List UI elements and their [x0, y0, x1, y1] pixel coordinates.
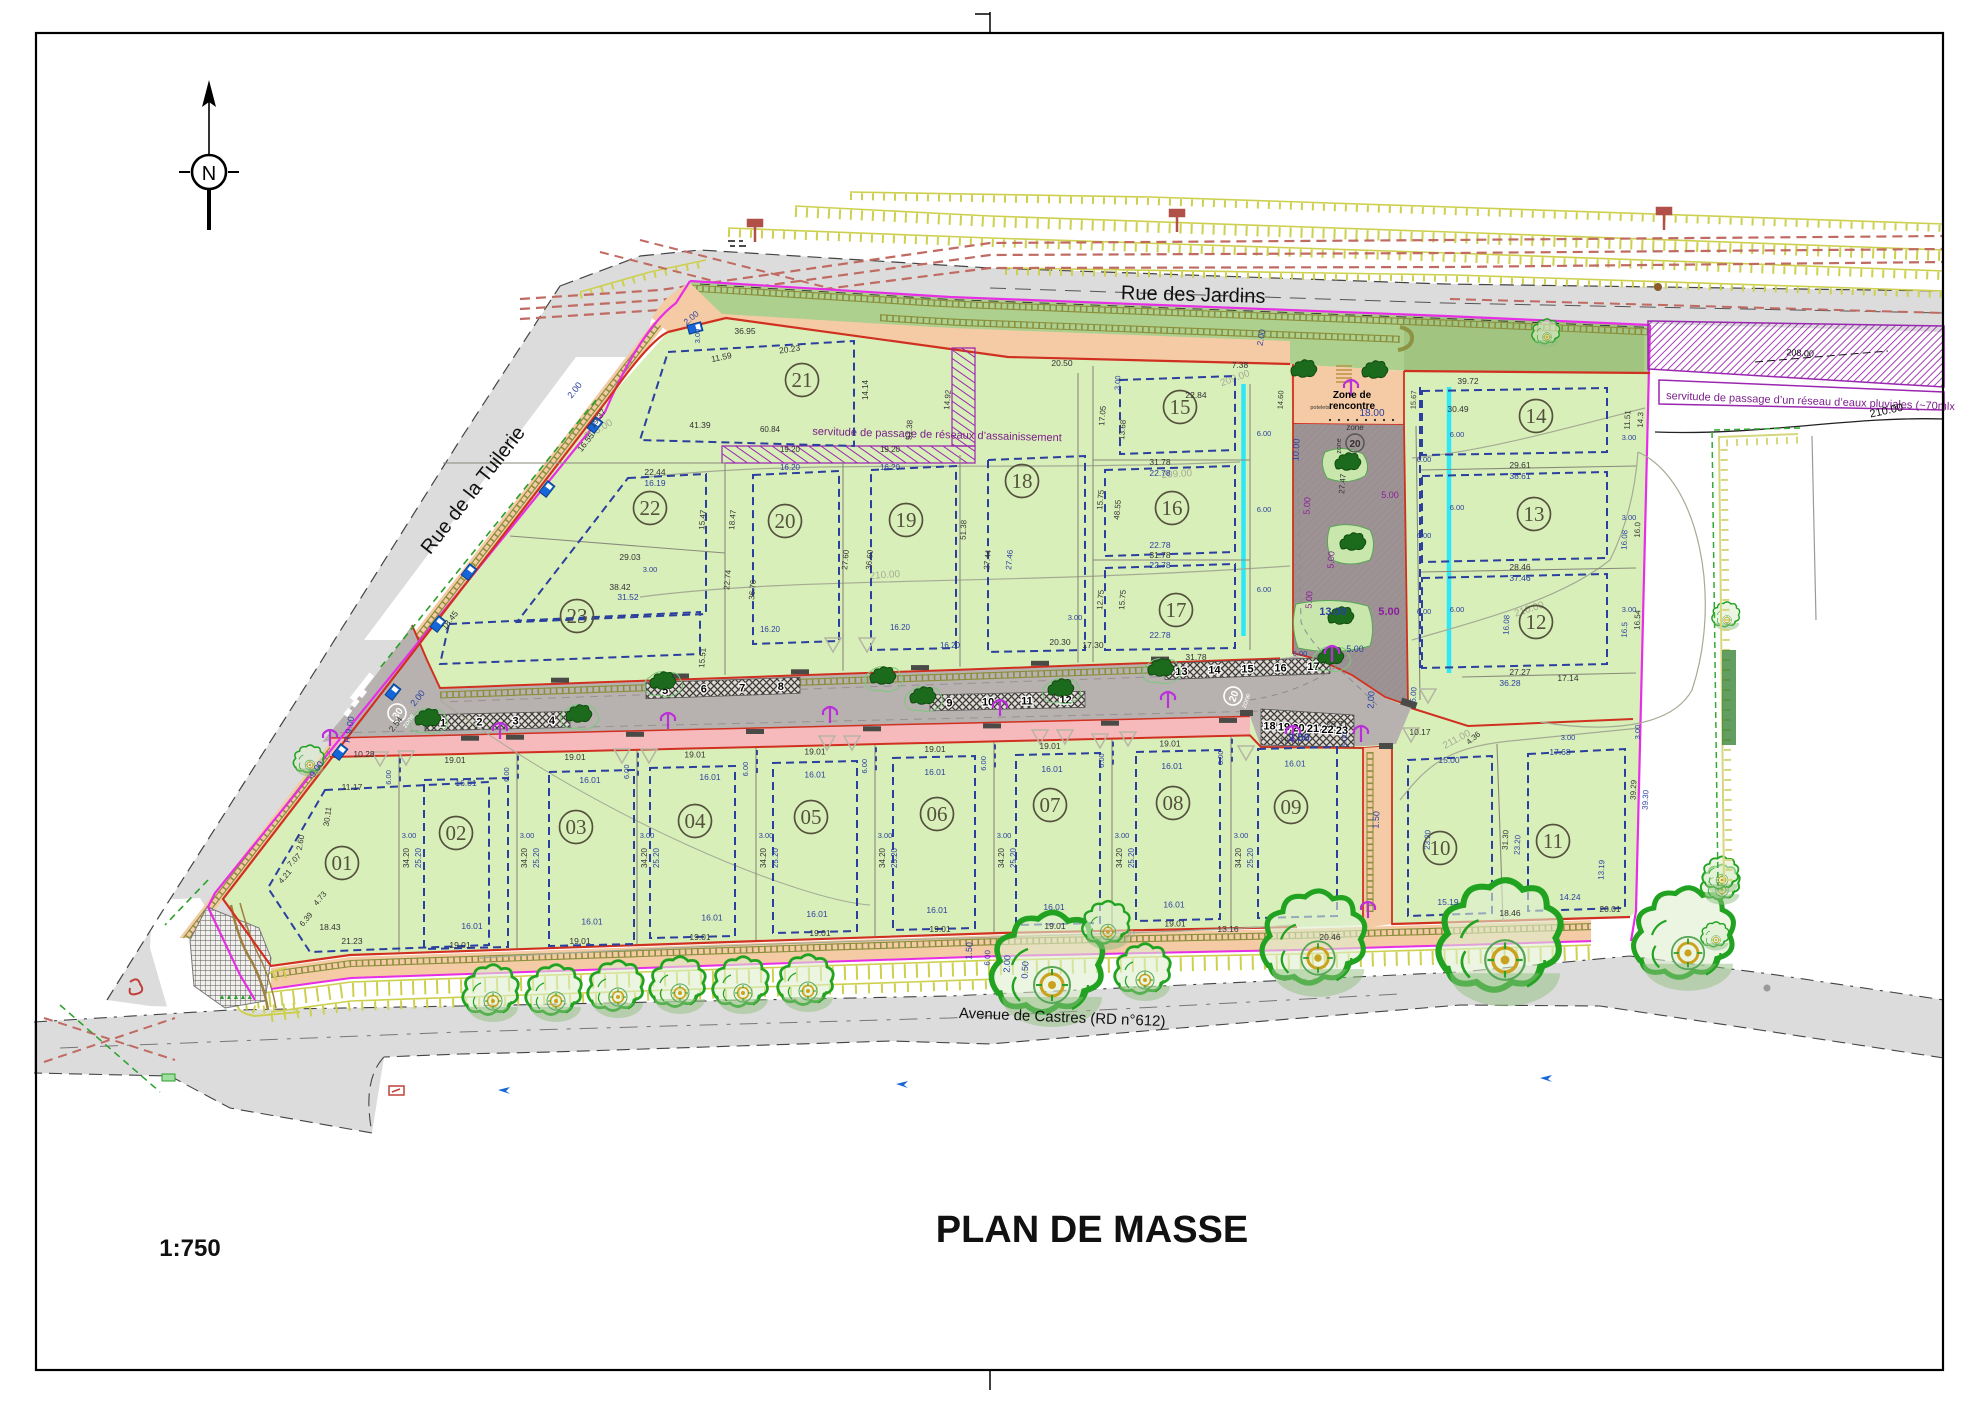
svg-text:16.01: 16.01: [1161, 761, 1183, 771]
svg-text:3.00: 3.00: [1633, 725, 1642, 740]
svg-text:rencontre: rencontre: [1329, 401, 1376, 412]
svg-text:25.20: 25.20: [532, 847, 541, 868]
svg-text:19.01: 19.01: [689, 932, 711, 942]
svg-text:13.68: 13.68: [1117, 419, 1128, 440]
svg-text:31.78: 31.78: [1149, 550, 1171, 560]
svg-text:05: 05: [801, 805, 822, 829]
svg-text:19.20: 19.20: [880, 445, 901, 454]
svg-text:13.00: 13.00: [1319, 606, 1347, 618]
svg-text:01: 01: [332, 851, 353, 875]
svg-text:6.00: 6.00: [1293, 649, 1308, 658]
svg-text:21: 21: [792, 368, 813, 392]
svg-text:16.01: 16.01: [926, 905, 948, 915]
svg-text:25.20: 25.20: [652, 847, 661, 868]
svg-text:7: 7: [739, 682, 745, 694]
svg-text:27.47: 27.47: [1337, 473, 1348, 494]
svg-text:6.00: 6.00: [1450, 605, 1465, 614]
svg-text:6.00: 6.00: [622, 764, 631, 779]
svg-text:4: 4: [549, 715, 556, 727]
svg-text:1.50: 1.50: [1371, 811, 1382, 829]
svg-text:34.20: 34.20: [640, 847, 649, 868]
svg-text:22.84: 22.84: [1185, 390, 1207, 400]
svg-text:06: 06: [927, 802, 948, 826]
svg-text:19.01: 19.01: [1044, 921, 1066, 931]
svg-text:6: 6: [701, 684, 707, 696]
svg-text:19.01: 19.01: [569, 936, 591, 946]
svg-text:5.00: 5.00: [1346, 644, 1364, 654]
svg-text:34.20: 34.20: [878, 847, 887, 868]
svg-text:0.50: 0.50: [1020, 961, 1031, 979]
svg-text:16.01: 16.01: [806, 909, 828, 919]
svg-text:6.00: 6.00: [1417, 455, 1432, 464]
svg-text:17.30: 17.30: [1082, 640, 1104, 650]
svg-text:17.05: 17.05: [1097, 405, 1108, 426]
svg-text:20.50: 20.50: [1051, 358, 1073, 368]
svg-text:36.28: 36.28: [1499, 678, 1521, 688]
svg-text:41.39: 41.39: [689, 420, 711, 430]
svg-text:22: 22: [640, 496, 661, 520]
svg-text:29.61: 29.61: [1509, 460, 1531, 470]
svg-text:16.01: 16.01: [1163, 900, 1185, 910]
svg-text:210.00: 210.00: [869, 569, 901, 582]
svg-text:23.20: 23.20: [1422, 829, 1432, 850]
svg-text:14.92: 14.92: [942, 389, 953, 410]
svg-text:51.38: 51.38: [958, 519, 968, 540]
svg-text:02: 02: [446, 821, 467, 845]
svg-text:14: 14: [1526, 404, 1548, 428]
svg-text:20: 20: [775, 509, 796, 533]
svg-text:36.60: 36.60: [864, 549, 875, 570]
svg-text:19.01: 19.01: [929, 924, 951, 934]
svg-text:18: 18: [1263, 721, 1275, 733]
svg-text:7.38: 7.38: [1232, 360, 1249, 370]
svg-text:6.00: 6.00: [1216, 750, 1225, 765]
svg-text:16.20: 16.20: [780, 463, 801, 472]
svg-text:6.00: 6.00: [860, 759, 869, 774]
svg-text:16.01: 16.01: [699, 772, 721, 782]
svg-text:25.20: 25.20: [1246, 847, 1255, 868]
svg-text:34.20: 34.20: [402, 847, 411, 868]
svg-text:18: 18: [1012, 469, 1033, 493]
svg-text:8: 8: [778, 681, 784, 693]
svg-text:5.00: 5.00: [1381, 490, 1399, 500]
svg-text:04: 04: [685, 809, 707, 833]
svg-text:11: 11: [1021, 696, 1033, 708]
svg-text:16.01: 16.01: [455, 778, 477, 788]
svg-text:3.00: 3.00: [1068, 613, 1083, 622]
svg-text:19.01: 19.01: [804, 747, 826, 757]
svg-text:5.00: 5.00: [1326, 551, 1337, 569]
svg-text:6.00: 6.00: [979, 756, 988, 771]
svg-text:20.30: 20.30: [1049, 637, 1071, 647]
svg-text:22.78: 22.78: [1149, 540, 1171, 550]
svg-text:2.00: 2.00: [1002, 955, 1013, 973]
svg-text:3.00: 3.00: [1622, 513, 1637, 522]
svg-text:22.78: 22.78: [1149, 630, 1171, 640]
svg-text:2.50: 2.50: [1288, 732, 1309, 744]
svg-text:3.00: 3.00: [759, 831, 774, 840]
svg-text:16.01: 16.01: [579, 775, 601, 785]
svg-text:6.00: 6.00: [741, 762, 750, 777]
svg-text:14: 14: [1208, 665, 1221, 677]
svg-text:39.30: 39.30: [1640, 789, 1650, 810]
svg-text:16.20: 16.20: [940, 641, 961, 650]
svg-text:6.00: 6.00: [1450, 430, 1465, 439]
svg-text:6.00: 6.00: [1257, 429, 1272, 438]
svg-text:16.0: 16.0: [1633, 521, 1643, 538]
svg-text:6.00: 6.00: [983, 949, 993, 966]
svg-text:30.49: 30.49: [1447, 404, 1469, 414]
svg-text:16.08: 16.08: [1619, 529, 1629, 550]
svg-text:3.00: 3.00: [878, 831, 893, 840]
svg-text:34.20: 34.20: [1115, 847, 1124, 868]
svg-text:16.01: 16.01: [804, 770, 826, 780]
svg-text:6.00: 6.00: [384, 770, 393, 785]
svg-text:19.01: 19.01: [444, 755, 466, 765]
svg-text:3.00: 3.00: [1622, 433, 1637, 442]
svg-text:11.51: 11.51: [1623, 409, 1633, 429]
svg-text:31.52: 31.52: [617, 592, 639, 602]
svg-text:27.27: 27.27: [1509, 667, 1531, 677]
svg-text:07: 07: [1040, 793, 1061, 817]
svg-text:19.01: 19.01: [809, 928, 831, 938]
svg-text:zone: zone: [1336, 438, 1343, 453]
svg-text:19.01: 19.01: [1164, 919, 1186, 929]
svg-text:19: 19: [896, 508, 917, 532]
svg-text:15.67: 15.67: [1409, 390, 1419, 409]
svg-text:19.01: 19.01: [1039, 741, 1061, 751]
svg-text:6.00: 6.00: [1257, 585, 1272, 594]
svg-text:15.75: 15.75: [1117, 589, 1128, 610]
svg-text:28.46: 28.46: [1509, 562, 1531, 572]
svg-text:34.20: 34.20: [1234, 847, 1243, 868]
svg-text:16.01: 16.01: [461, 921, 483, 931]
svg-text:15.75: 15.75: [1095, 489, 1106, 510]
svg-text:5.00: 5.00: [1304, 591, 1315, 609]
svg-text:18.46: 18.46: [1499, 908, 1521, 918]
svg-text:6.00: 6.00: [1257, 505, 1272, 514]
svg-text:zone: zone: [1346, 423, 1364, 432]
svg-text:25.20: 25.20: [890, 847, 899, 868]
svg-text:15.00: 15.00: [1438, 755, 1460, 765]
svg-text:14.14: 14.14: [861, 379, 870, 400]
svg-text:17.68: 17.68: [1549, 747, 1571, 757]
svg-text:6.00: 6.00: [1097, 753, 1106, 768]
svg-text:39.72: 39.72: [1457, 376, 1479, 386]
svg-text:20.01: 20.01: [1599, 904, 1621, 914]
svg-text:34.20: 34.20: [520, 847, 529, 868]
svg-text:51.38: 51.38: [904, 419, 914, 440]
svg-text:Zone de: Zone de: [1333, 390, 1372, 401]
svg-text:39.29: 39.29: [1628, 779, 1638, 800]
svg-text:19.20: 19.20: [780, 445, 801, 454]
svg-text:27.44: 27.44: [982, 549, 993, 570]
svg-text:5.00: 5.00: [1378, 606, 1399, 618]
svg-text:19.01: 19.01: [1159, 738, 1181, 748]
svg-text:31.78: 31.78: [1185, 652, 1207, 662]
svg-text:11.17: 11.17: [342, 782, 363, 792]
svg-text:19.01: 19.01: [684, 749, 706, 759]
svg-text:19.01: 19.01: [924, 744, 946, 754]
svg-text:10.28: 10.28: [353, 749, 375, 759]
svg-text:03: 03: [566, 815, 587, 839]
svg-text:6.00: 6.00: [1450, 503, 1465, 512]
svg-text:16.20: 16.20: [880, 463, 901, 472]
svg-text:16.19: 16.19: [644, 478, 666, 488]
svg-text:1.50: 1.50: [964, 942, 975, 960]
svg-text:10.00: 10.00: [1290, 438, 1301, 461]
svg-text:27.60: 27.60: [840, 549, 851, 570]
svg-text:36.95: 36.95: [734, 326, 756, 336]
svg-text:20: 20: [1349, 439, 1361, 450]
svg-text:29.03: 29.03: [619, 552, 641, 562]
svg-text:21.23: 21.23: [341, 936, 363, 946]
svg-text:10: 10: [1430, 836, 1451, 860]
svg-text:13: 13: [1524, 502, 1545, 526]
svg-text:16.20: 16.20: [890, 623, 911, 632]
svg-text:27.46: 27.46: [1004, 549, 1015, 570]
svg-text:23: 23: [567, 604, 588, 628]
svg-text:13: 13: [1175, 666, 1187, 678]
svg-text:16.01: 16.01: [924, 767, 946, 777]
svg-text:3.00: 3.00: [520, 831, 535, 840]
svg-text:15.51: 15.51: [697, 647, 708, 668]
svg-text:18.43: 18.43: [319, 922, 341, 932]
svg-text:16: 16: [1274, 662, 1286, 674]
svg-text:Rue des Jardins: Rue des Jardins: [1121, 282, 1266, 308]
svg-text:3.00: 3.00: [693, 329, 702, 344]
svg-text:38.61: 38.61: [1509, 471, 1531, 481]
svg-text:19.01: 19.01: [449, 940, 471, 950]
svg-text:18.47: 18.47: [727, 509, 738, 530]
svg-text:3.00: 3.00: [402, 831, 417, 840]
svg-text:14.3: 14.3: [1636, 411, 1646, 428]
svg-text:48.55: 48.55: [1112, 499, 1123, 520]
svg-text:16.08: 16.08: [1501, 614, 1511, 635]
svg-text:potelets: potelets: [1310, 405, 1330, 411]
svg-text:12: 12: [1526, 610, 1547, 634]
svg-text:14.24: 14.24: [1559, 892, 1581, 902]
svg-text:3.00: 3.00: [1234, 831, 1249, 840]
svg-text:11: 11: [1543, 829, 1563, 853]
svg-text:PLAN DE MASSE: PLAN DE MASSE: [936, 1209, 1248, 1251]
svg-text:31.30: 31.30: [1500, 829, 1510, 850]
svg-text:16.5: 16.5: [1620, 621, 1630, 638]
svg-text:3.00: 3.00: [1113, 375, 1123, 390]
svg-text:23.20: 23.20: [1512, 834, 1522, 855]
svg-text:17.14: 17.14: [1557, 673, 1579, 683]
svg-text:20.71: 20.71: [1326, 719, 1348, 729]
svg-text:15.47: 15.47: [697, 509, 708, 530]
svg-text:3.00: 3.00: [997, 831, 1012, 840]
svg-text:16: 16: [1162, 496, 1183, 520]
svg-text:22.44: 22.44: [644, 467, 666, 477]
svg-text:25.20: 25.20: [1009, 847, 1018, 868]
svg-text:09: 09: [1281, 795, 1302, 819]
svg-text:1:750: 1:750: [159, 1235, 220, 1262]
svg-text:25.20: 25.20: [771, 847, 780, 868]
svg-text:25.20: 25.20: [414, 847, 423, 868]
svg-text:3.00: 3.00: [643, 565, 658, 574]
svg-text:15.19: 15.19: [1437, 897, 1459, 907]
svg-text:16.01: 16.01: [1043, 902, 1065, 912]
svg-text:14.60: 14.60: [1276, 390, 1286, 409]
svg-text:2.00: 2.00: [1366, 691, 1377, 709]
svg-text:13.16: 13.16: [1217, 924, 1239, 934]
svg-text:3.00: 3.00: [1622, 605, 1637, 614]
svg-text:12.75: 12.75: [1095, 589, 1106, 610]
svg-text:6.00: 6.00: [1340, 733, 1349, 748]
svg-text:6.00: 6.00: [502, 767, 511, 782]
svg-text:6.00: 6.00: [1417, 607, 1432, 616]
svg-text:3.00: 3.00: [1115, 831, 1130, 840]
svg-text:▲▲▲▲▲: ▲▲▲▲▲: [219, 994, 254, 1001]
svg-text:38.42: 38.42: [609, 582, 631, 592]
svg-text:16.01: 16.01: [581, 917, 603, 927]
svg-text:6.00: 6.00: [1417, 531, 1432, 540]
svg-text:5.00: 5.00: [1408, 686, 1418, 703]
svg-text:9: 9: [946, 697, 952, 709]
svg-text:22.78: 22.78: [1149, 560, 1171, 570]
svg-text:20.46: 20.46: [1319, 932, 1341, 942]
svg-text:10.17: 10.17: [1409, 727, 1431, 737]
svg-text:13.19: 13.19: [1596, 859, 1606, 880]
svg-text:5.00: 5.00: [1302, 497, 1313, 515]
svg-text:3.00: 3.00: [1561, 733, 1576, 742]
svg-text:15: 15: [1241, 664, 1253, 676]
svg-text:3: 3: [513, 716, 519, 728]
svg-text:22.74: 22.74: [722, 569, 733, 590]
svg-text:3.00: 3.00: [640, 831, 655, 840]
svg-text:N: N: [202, 163, 216, 185]
svg-text:17: 17: [1166, 598, 1187, 622]
svg-text:34.20: 34.20: [997, 847, 1006, 868]
svg-text:31.78: 31.78: [1149, 457, 1171, 467]
svg-text:16.20: 16.20: [760, 625, 781, 634]
svg-text:19.01: 19.01: [564, 752, 586, 762]
svg-text:16.01: 16.01: [1041, 764, 1063, 774]
svg-text:34.20: 34.20: [759, 847, 768, 868]
svg-text:22.78: 22.78: [1149, 468, 1171, 478]
svg-text:37.46: 37.46: [1509, 573, 1531, 583]
svg-text:60.84: 60.84: [760, 425, 781, 434]
svg-text:16.01: 16.01: [701, 913, 723, 923]
svg-text:36.76: 36.76: [747, 579, 758, 600]
svg-text:08: 08: [1163, 791, 1184, 815]
svg-text:25.20: 25.20: [1127, 847, 1136, 868]
svg-text:16.01: 16.01: [1284, 758, 1306, 768]
